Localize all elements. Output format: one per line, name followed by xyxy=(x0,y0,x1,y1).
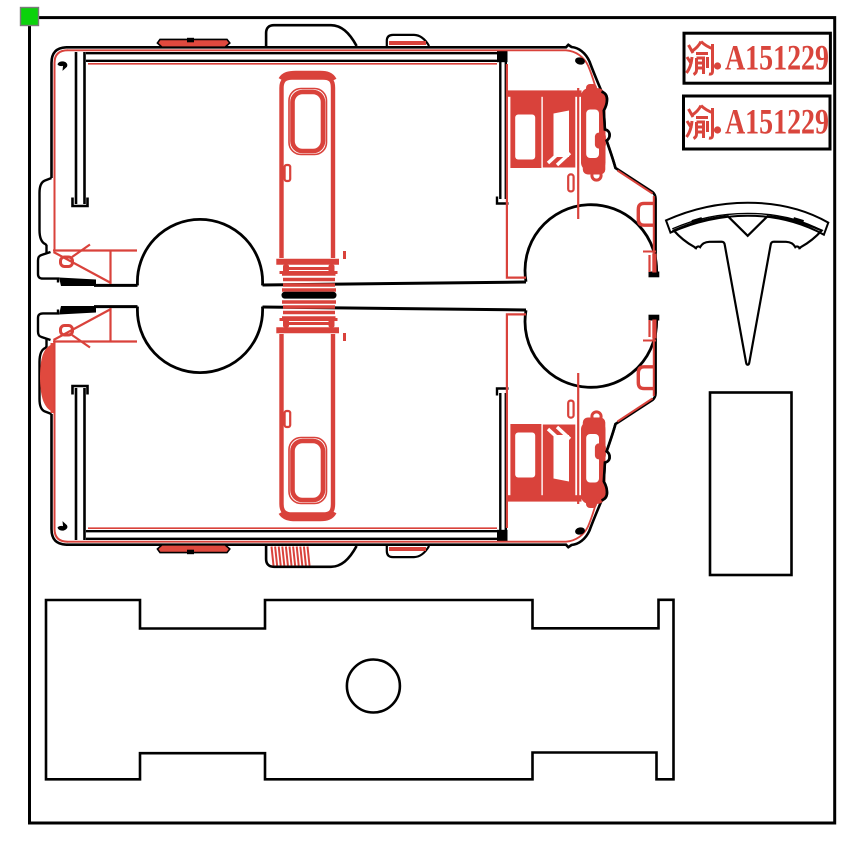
svg-text:A151229: A151229 xyxy=(725,102,829,142)
svg-text:A151229: A151229 xyxy=(725,38,829,78)
